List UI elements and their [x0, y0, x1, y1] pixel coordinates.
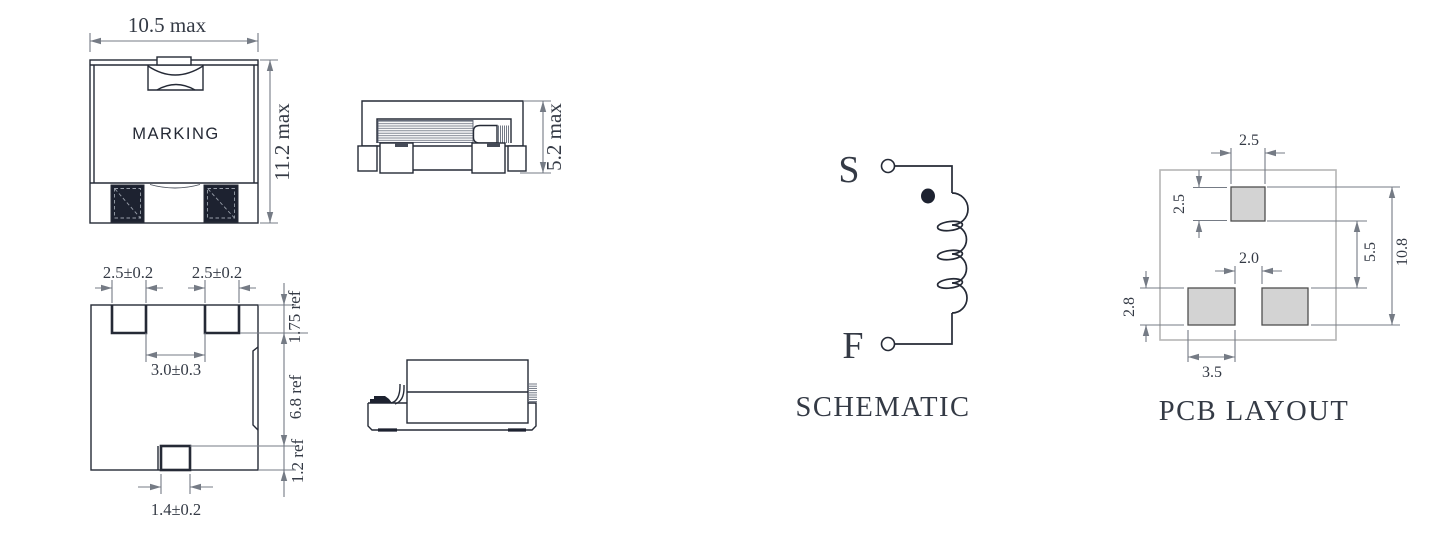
side-seam	[253, 347, 258, 430]
pcb-dimensions	[1140, 148, 1400, 362]
bottom-pad-notch-right	[205, 305, 239, 333]
pcb-layout: 2.5 2.5 2.0 2.8 5.5 10.8 3.5 PCB LAYOUT	[1121, 132, 1411, 427]
dim-bottom-pad-height: 2.8	[1121, 297, 1138, 317]
dim-tab-width: 1.4±0.2	[151, 500, 201, 519]
dim-pad-depth: 1.75 ref	[285, 290, 304, 343]
foot	[508, 146, 526, 171]
pcb-pad-top	[1231, 187, 1265, 221]
terminal-s-circle	[882, 160, 895, 173]
side-view-bottom	[368, 360, 537, 430]
core-window	[148, 65, 203, 90]
foot	[380, 143, 413, 173]
schematic-title: SCHEMATIC	[795, 392, 970, 423]
foot	[358, 146, 377, 171]
dim-bottom-pad-width: 3.5	[1202, 364, 1222, 381]
drawing-svg: 10.5 max 11.2 max MARKING 5.2 max	[0, 0, 1435, 559]
bottom-view-dimensions	[95, 280, 308, 497]
dim-pad-gap: 3.0±0.3	[151, 360, 201, 379]
endcap-hatch	[499, 126, 509, 144]
dim-profile-height: 5.2 max	[542, 103, 566, 171]
schematic: S F SCHEMATIC	[795, 149, 970, 423]
dim-top-pad-height: 2.5	[1171, 194, 1188, 214]
pcb-layout-title: PCB LAYOUT	[1159, 396, 1350, 427]
terminal-pad-left	[111, 185, 144, 222]
top-view: 10.5 max 11.2 max MARKING	[90, 13, 294, 223]
dim-pad-width-right: 2.5±0.2	[192, 263, 242, 282]
pcb-pad-bottom-right	[1262, 288, 1308, 325]
foot	[472, 143, 505, 173]
polarity-dot	[921, 189, 935, 204]
engineering-drawing: 10.5 max 11.2 max MARKING 5.2 max	[0, 0, 1435, 559]
dim-top-pad-width: 2.5	[1239, 132, 1259, 149]
lead-wire	[391, 384, 400, 403]
dim-pad-spacing: 5.5	[1362, 242, 1379, 262]
dim-bottom-pad-gap: 2.0	[1239, 250, 1259, 267]
bottom-pad-notch-left	[112, 305, 146, 333]
top-tab	[157, 57, 191, 65]
dim-overall-height: 10.8	[1394, 238, 1411, 266]
dim-pad-width-left: 2.5±0.2	[103, 263, 153, 282]
dim-body-length: 6.8 ref	[286, 374, 305, 419]
bottom-view: 2.5±0.2 2.5±0.2 3.0±0.3 1.75 ref 6.8 ref…	[91, 263, 308, 519]
inductor-coil	[952, 193, 968, 313]
terminal-start-label: S	[838, 149, 859, 191]
terminal-bump	[370, 396, 392, 403]
dim-tab-height: 1.2 ref	[288, 438, 307, 483]
side-view-front: 5.2 max	[358, 101, 566, 173]
bottom-tab-pad	[161, 446, 190, 470]
winding-hatch	[378, 121, 473, 143]
marking-label: MARKING	[132, 125, 220, 143]
dim-height-max: 11.2 max	[270, 103, 294, 181]
terminal-finish-label: F	[842, 325, 863, 367]
terminal-f-circle	[882, 338, 895, 351]
pcb-pad-bottom-left	[1188, 288, 1235, 325]
terminal-pad-right	[204, 185, 238, 222]
dim-width-max: 10.5 max	[128, 13, 207, 37]
wire-turns-hatch	[528, 384, 537, 402]
winding-endcap	[474, 126, 498, 144]
